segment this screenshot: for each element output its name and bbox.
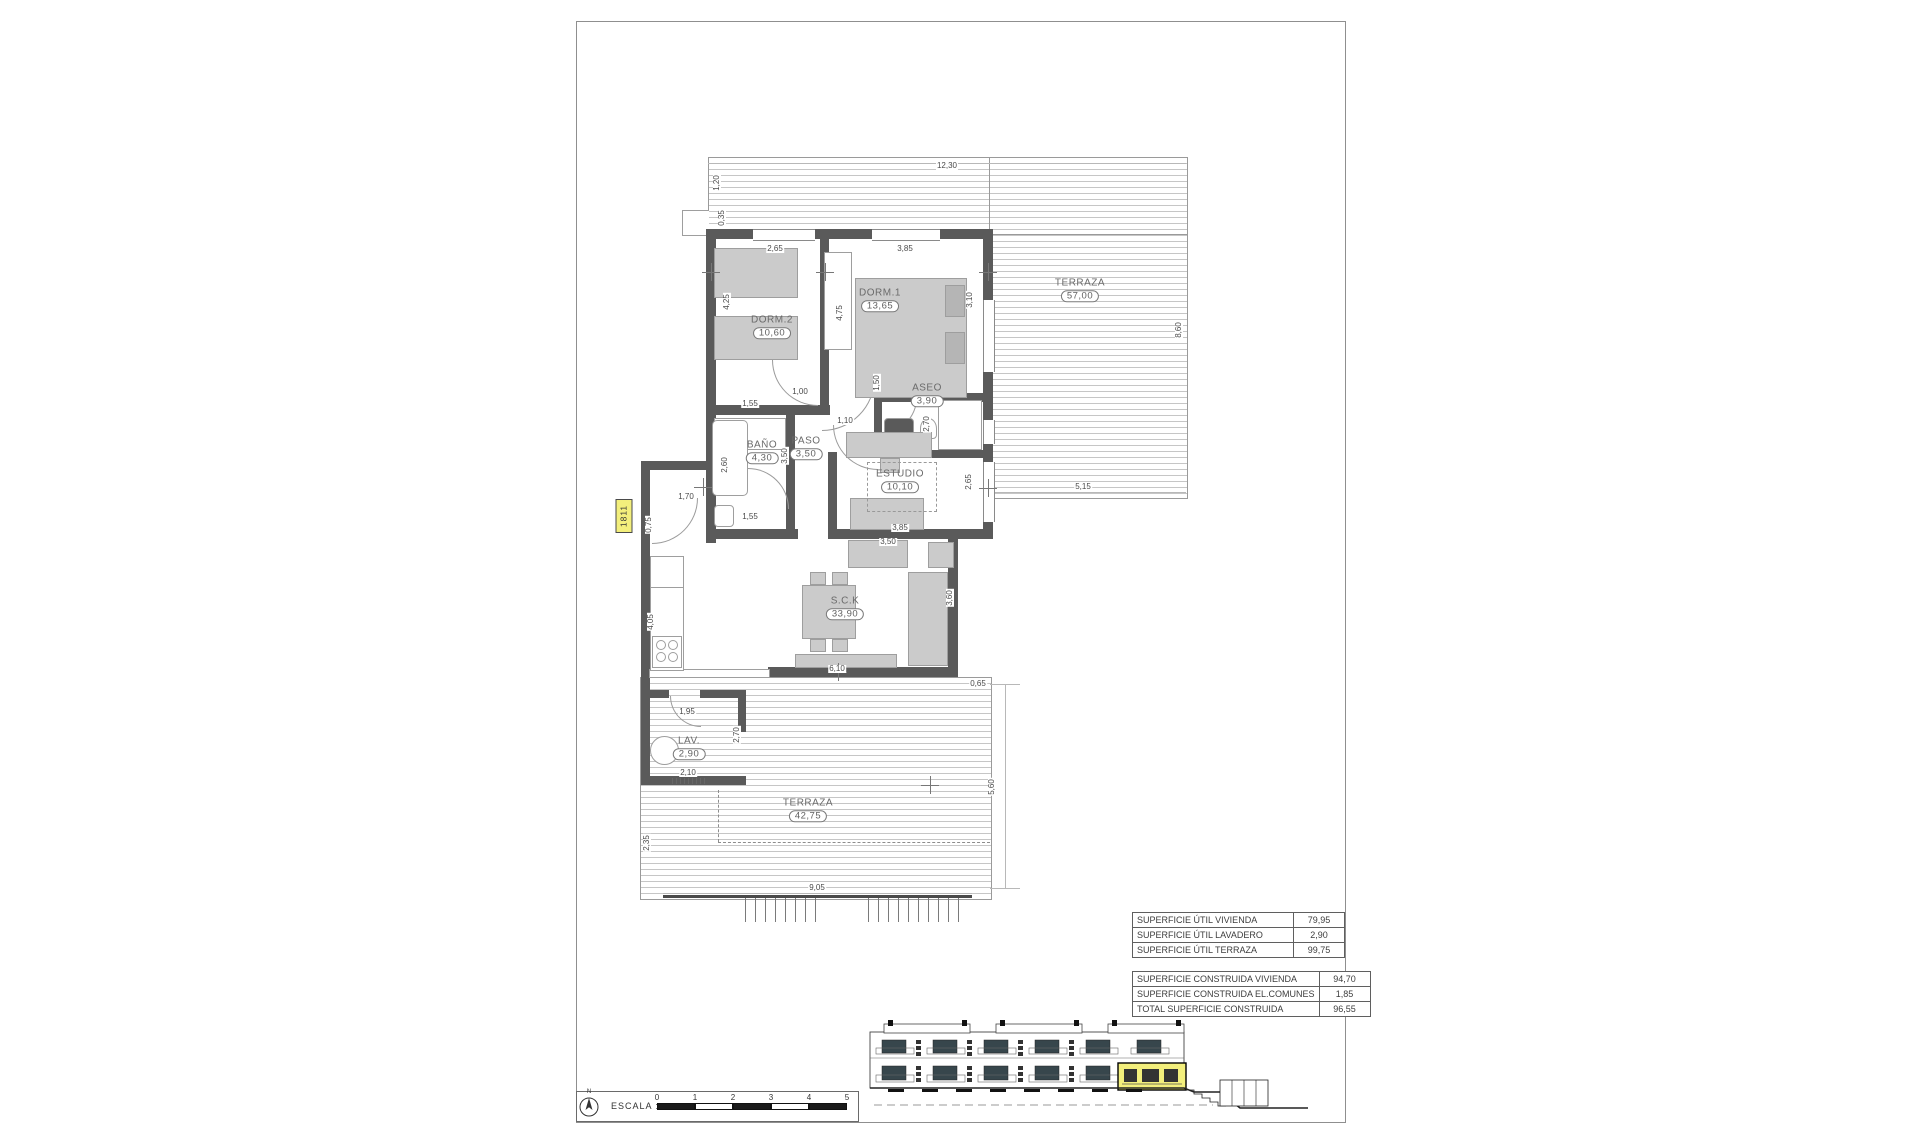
room-area-value: 13,65 [861,300,899,313]
room-name: ESTUDIO [876,468,924,480]
column-marker [979,479,997,497]
table-value: 96,55 [1319,1002,1370,1017]
scale-label: ESCALA : [611,1101,659,1111]
room-label-bao: BAÑO4,30 [746,439,779,464]
wall [786,415,795,535]
north-arrow-icon [578,1094,600,1118]
dimension-label: 9,05 [808,884,826,892]
railing-balusters [868,898,968,922]
room-area-value: 3,90 [911,395,944,408]
dimension-label: 1,55 [741,400,759,408]
dimension-label: 1,00 [791,388,809,396]
burner [668,652,678,662]
room-label-paso: PASO3,50 [790,435,823,460]
chair [832,639,848,652]
table-row: TOTAL SUPERFICIE CONSTRUIDA96,55 [1133,1002,1371,1017]
scale-tick: 3 [769,1093,773,1102]
burner [656,652,666,662]
dimension-label: 3,85 [896,245,914,253]
side-table [928,542,954,568]
dimension-label: 1,70 [677,493,695,501]
dimension-label: 3,50 [879,538,897,546]
room-label-aseo: ASEO3,90 [911,382,944,407]
terrace-dashed-line-vertical [718,790,719,842]
dimension-label: 0,35 [718,209,726,227]
table-row: SUPERFICIE ÚTIL VIVIENDA79,95 [1133,913,1345,928]
bathtub [712,420,748,496]
dimension-label: 2,65 [965,473,973,491]
window-dorm2 [753,229,815,241]
room-area-value: 2,90 [673,748,706,761]
table-label: SUPERFICIE ÚTIL VIVIENDA [1133,913,1294,928]
dimension-label: 2,35 [643,834,651,852]
room-name: TERRAZA [1055,277,1105,289]
pillow-dorm1-b [945,332,965,364]
elevation-foundation-marks [888,1089,1142,1092]
column-marker [816,263,834,281]
window-dorm1 [872,229,940,241]
scale-segment [695,1103,733,1110]
vent-aseo [983,420,995,444]
chair [810,572,826,585]
wall [828,452,837,529]
fridge [650,556,684,588]
dimension-label: 2,65 [766,245,784,253]
dim-line-905 [663,893,972,894]
dimension-label: 3,50 [781,447,789,465]
room-name: LAV. [673,735,706,747]
room-area-value: 3,50 [790,448,823,461]
surface-table-construida: SUPERFICIE CONSTRUIDA VIVIENDA94,70SUPER… [1132,971,1371,1017]
table-row: SUPERFICIE ÚTIL TERRAZA99,75 [1133,943,1345,958]
table-label: SUPERFICIE ÚTIL TERRAZA [1133,943,1294,958]
room-label-terraza: TERRAZA57,00 [1055,277,1105,302]
scale-segment [657,1103,695,1110]
dimension-label: 4,05 [647,613,655,631]
scale-tick: 2 [731,1093,735,1102]
dimension-label: 5,60 [988,778,996,796]
table-row: SUPERFICIE CONSTRUIDA VIVIENDA94,70 [1133,972,1371,987]
table-label: SUPERFICIE CONSTRUIDA VIVIENDA [1133,972,1320,987]
column-marker [694,478,712,496]
table-value: 1,85 [1319,987,1370,1002]
room-label-lav: LAV.2,90 [673,735,706,760]
dimension-label: 1,95 [678,708,696,716]
dimension-label: 3,85 [891,524,909,532]
burner [668,640,678,650]
shower-aseo [938,400,982,450]
room-name: S.C.K [826,595,864,607]
pillow-dorm1-a [945,285,965,317]
chair [810,639,826,652]
room-area-value: 42,75 [789,810,827,823]
dimension-label: 1,55 [741,513,759,521]
room-name: PASO [790,435,823,447]
room-name: ASEO [911,382,944,394]
table-value: 79,95 [1294,913,1345,928]
column-marker [979,263,997,281]
table-label: SUPERFICIE CONSTRUIDA EL.COMUNES [1133,987,1320,1002]
room-label-dorm1: DORM.113,65 [859,287,901,312]
railing-balusters [745,898,819,922]
scale-segment [733,1103,771,1110]
room-label-terraza: TERRAZA42,75 [783,797,833,822]
room-name: DORM.2 [751,314,793,326]
dimension-label: 2,60 [721,456,729,474]
dimension-label: 1,50 [873,374,881,392]
room-label-dorm2: DORM.210,60 [751,314,793,339]
chair [832,572,848,585]
wall [706,529,798,539]
wall [641,690,669,698]
wall [706,405,830,415]
room-area-value: 4,30 [746,452,779,465]
column-marker [921,776,939,794]
sofa-top [848,540,908,568]
building-elevation [868,1020,1313,1120]
wall [641,687,650,785]
unit-number-tag: 1811 [616,499,633,533]
desk-estudio [846,432,932,458]
dimension-label: 8,60 [1175,321,1183,339]
room-area-value: 10,60 [753,327,791,340]
room-name: BAÑO [746,439,779,451]
wall [641,461,716,470]
dimension-label: 4,75 [836,304,844,322]
dimension-label: 12,30 [936,162,958,170]
scale-tick: 1 [693,1093,697,1102]
surface-table-util: SUPERFICIE ÚTIL VIVIENDA79,95SUPERFICIE … [1132,912,1345,958]
scale-segment [809,1103,847,1110]
table-row: SUPERFICIE CONSTRUIDA EL.COMUNES1,85 [1133,987,1371,1002]
terrace-dashed-line [718,842,990,843]
room-name: DORM.1 [859,287,901,299]
wc-bano [714,505,734,527]
column-marker [702,263,720,281]
sofa-l [908,572,948,666]
table-label: SUPERFICIE ÚTIL LAVADERO [1133,928,1294,943]
dimension-label: 3,10 [966,291,974,309]
scale-segment [771,1103,809,1110]
dimension-label: 1,20 [713,174,721,192]
dimension-label: 0,75 [645,516,653,534]
room-area-value: 33,90 [826,608,864,621]
frame-notch [682,210,709,236]
room-label-estudio: ESTUDIO10,10 [876,468,924,493]
wall [828,529,993,539]
table-row: SUPERFICIE ÚTIL LAVADERO2,90 [1133,928,1345,943]
wall [706,229,993,239]
room-area-value: 10,10 [881,481,919,494]
table-value: 94,70 [1319,972,1370,987]
burner [656,640,666,650]
dimension-label: 6,10 [828,665,846,673]
scale-tick: 4 [807,1093,811,1102]
dimension-label: 3,60 [946,589,954,607]
dimension-label: 2,70 [923,415,931,433]
dimension-label: 2,70 [733,726,741,744]
room-area-value: 57,00 [1061,290,1099,303]
scale-tick: 0 [655,1093,659,1102]
window-dorm1-side [983,300,995,372]
elevation-highlighted-unit [1118,1063,1186,1090]
wall [641,461,650,687]
dim-line-560v [1005,684,1006,889]
scale-tick: 5 [845,1093,849,1102]
bed-dorm2-a [714,248,798,298]
room-label-sck: S.C.K33,90 [826,595,864,620]
dimension-label: 2,10 [679,769,697,777]
dimension-label: 4,25 [723,293,731,311]
lav-grill [672,778,705,784]
terrace-upper-side [989,157,1188,499]
table-value: 2,90 [1294,928,1345,943]
wall [768,667,958,677]
table-value: 99,75 [1294,943,1345,958]
dimension-label: 1,10 [836,417,854,425]
dim-line-515 [990,492,1186,493]
room-name: TERRAZA [783,797,833,809]
table-label: TOTAL SUPERFICIE CONSTRUIDA [1133,1002,1320,1017]
dimension-label: 5,15 [1074,483,1092,491]
dimension-label: 0,65 [969,680,987,688]
